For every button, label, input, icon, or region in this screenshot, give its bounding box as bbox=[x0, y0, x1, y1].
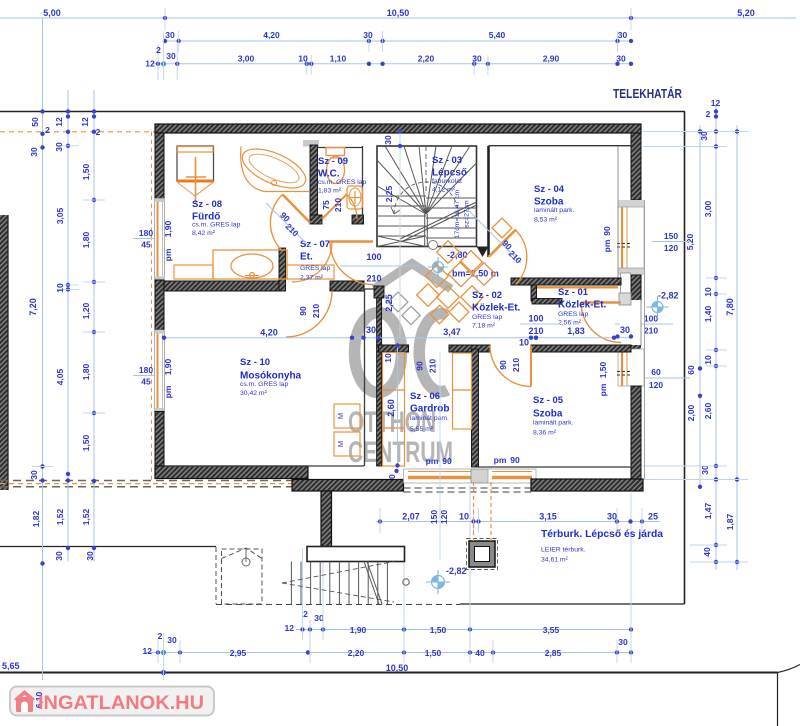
svg-text:45: 45 bbox=[141, 377, 151, 387]
svg-text:Térburk. Lépcső és járda: Térburk. Lépcső és járda bbox=[541, 529, 663, 540]
svg-text:Sz - 06: Sz - 06 bbox=[410, 391, 440, 402]
svg-text:3,00: 3,00 bbox=[238, 54, 255, 64]
svg-text:3,47: 3,47 bbox=[443, 327, 461, 337]
svg-text:2,07: 2,07 bbox=[402, 512, 420, 522]
svg-text:1,90: 1,90 bbox=[163, 220, 173, 237]
svg-text:GRES lap: GRES lap bbox=[472, 314, 502, 321]
svg-text:Sz - 10: Sz - 10 bbox=[240, 357, 270, 368]
svg-text:12: 12 bbox=[145, 59, 155, 69]
svg-text:2,37 m²: 2,37 m² bbox=[300, 275, 324, 282]
svg-text:8,42 m²: 8,42 m² bbox=[192, 230, 216, 237]
svg-text:10,50: 10,50 bbox=[387, 8, 410, 18]
svg-text:30: 30 bbox=[166, 51, 176, 61]
svg-text:1,52: 1,52 bbox=[55, 508, 65, 525]
svg-text:2: 2 bbox=[156, 45, 161, 55]
svg-text:1,50: 1,50 bbox=[598, 361, 608, 378]
svg-text:5,55 m²: 5,55 m² bbox=[410, 426, 434, 433]
svg-text:Sz - 01: Sz - 01 bbox=[558, 287, 589, 298]
svg-text:cs.m. GRES lap: cs.m. GRES lap bbox=[318, 179, 367, 186]
svg-text:10: 10 bbox=[703, 355, 713, 365]
svg-text:150: 150 bbox=[429, 510, 439, 524]
svg-text:1,20: 1,20 bbox=[81, 302, 91, 319]
svg-text:3,55: 3,55 bbox=[543, 625, 560, 635]
svg-text:1,52: 1,52 bbox=[81, 508, 91, 525]
svg-text:10: 10 bbox=[703, 287, 713, 297]
svg-text:210: 210 bbox=[311, 304, 321, 318]
svg-text:10,50: 10,50 bbox=[386, 663, 409, 673]
svg-text:12: 12 bbox=[54, 117, 64, 127]
svg-text:1,47: 1,47 bbox=[703, 502, 713, 519]
svg-text:Sz - 02: Sz - 02 bbox=[472, 290, 502, 301]
svg-text:210: 210 bbox=[366, 274, 381, 284]
svg-text:-2,82: -2,82 bbox=[658, 291, 679, 301]
svg-text:25: 25 bbox=[648, 512, 658, 522]
svg-text:3,15: 3,15 bbox=[539, 512, 557, 522]
svg-text:2,90: 2,90 bbox=[543, 54, 560, 64]
svg-text:2,85: 2,85 bbox=[545, 648, 562, 658]
svg-text:GRES lap: GRES lap bbox=[558, 311, 588, 318]
svg-text:210: 210 bbox=[644, 326, 658, 336]
svg-text:cs.m. GRES lap: cs.m. GRES lap bbox=[240, 381, 289, 388]
svg-text:Sz - 04: Sz - 04 bbox=[534, 184, 565, 195]
svg-text:60: 60 bbox=[686, 365, 696, 375]
svg-text:M: M bbox=[336, 441, 345, 447]
svg-text:pm: pm bbox=[598, 383, 608, 396]
svg-text:Közlek-Et.: Közlek-Et. bbox=[558, 300, 607, 311]
svg-text:laminált park.: laminált park. bbox=[533, 420, 574, 427]
svg-text:Sz - 07: Sz - 07 bbox=[300, 239, 330, 250]
svg-text:Mosókonyha: Mosókonyha bbox=[240, 371, 302, 382]
svg-text:75: 75 bbox=[321, 200, 331, 210]
svg-text:4,12 m²: 4,12 m² bbox=[432, 187, 456, 194]
svg-text:7,18 m²: 7,18 m² bbox=[472, 323, 496, 330]
svg-text:2: 2 bbox=[96, 127, 101, 137]
svg-text:150: 150 bbox=[664, 231, 678, 241]
svg-text:5,40: 5,40 bbox=[489, 30, 506, 40]
svg-text:210: 210 bbox=[428, 359, 438, 373]
svg-text:90: 90 bbox=[442, 456, 452, 466]
svg-text:faburkolat: faburkolat bbox=[432, 178, 462, 185]
svg-text:1,50: 1,50 bbox=[81, 163, 91, 180]
svg-text:30: 30 bbox=[383, 135, 393, 145]
svg-text:30: 30 bbox=[618, 637, 628, 647]
svg-text:1,87: 1,87 bbox=[725, 513, 735, 530]
svg-text:30: 30 bbox=[85, 551, 95, 561]
svg-text:2: 2 bbox=[303, 609, 308, 619]
svg-text:Sz - 03: Sz - 03 bbox=[432, 155, 462, 166]
svg-text:7,20: 7,20 bbox=[28, 298, 38, 316]
svg-text:2: 2 bbox=[45, 125, 50, 135]
svg-text:12: 12 bbox=[285, 623, 295, 633]
svg-text:Sz - 08: Sz - 08 bbox=[192, 199, 222, 210]
svg-text:2,00: 2,00 bbox=[686, 404, 696, 421]
svg-text:30: 30 bbox=[314, 613, 324, 623]
svg-text:90: 90 bbox=[415, 361, 425, 371]
svg-text:Gardrob: Gardrob bbox=[410, 404, 449, 415]
svg-text:GRES lap: GRES lap bbox=[300, 265, 330, 272]
svg-text:cs.m. GRES lap: cs.m. GRES lap bbox=[192, 222, 241, 229]
svg-text:pm: pm bbox=[494, 455, 507, 465]
svg-text:100: 100 bbox=[528, 314, 543, 324]
svg-text:2: 2 bbox=[158, 631, 163, 641]
svg-text:3,05: 3,05 bbox=[55, 207, 65, 224]
svg-text:INGATLANOK.HU: INGATLANOK.HU bbox=[38, 692, 204, 714]
svg-text:1,82: 1,82 bbox=[31, 510, 41, 527]
svg-text:4,20: 4,20 bbox=[260, 328, 278, 338]
svg-text:180: 180 bbox=[139, 365, 153, 375]
svg-text:Sz - 09: Sz - 09 bbox=[318, 156, 348, 167]
svg-text:2,95: 2,95 bbox=[230, 648, 247, 658]
svg-text:3,00: 3,00 bbox=[703, 200, 713, 217]
svg-text:pm: pm bbox=[602, 239, 612, 252]
svg-text:pm: pm bbox=[426, 456, 439, 466]
svg-text:30: 30 bbox=[29, 470, 39, 480]
svg-text:30: 30 bbox=[616, 54, 626, 64]
svg-text:34,61 m²: 34,61 m² bbox=[541, 557, 569, 564]
svg-text:30: 30 bbox=[29, 147, 39, 157]
svg-text:30: 30 bbox=[54, 551, 64, 561]
svg-text:M: M bbox=[336, 413, 345, 419]
svg-text:5,00: 5,00 bbox=[43, 8, 61, 18]
svg-text:210: 210 bbox=[528, 326, 543, 336]
svg-text:12: 12 bbox=[711, 98, 721, 108]
svg-text:30: 30 bbox=[620, 325, 630, 335]
svg-text:30: 30 bbox=[165, 30, 175, 40]
svg-text:30: 30 bbox=[618, 30, 628, 40]
svg-text:5,20: 5,20 bbox=[737, 8, 755, 18]
svg-text:90: 90 bbox=[602, 226, 612, 236]
svg-text:40: 40 bbox=[702, 547, 712, 557]
svg-text:8,53 m²: 8,53 m² bbox=[534, 217, 558, 224]
svg-text:210: 210 bbox=[333, 198, 343, 212]
svg-text:W.C.: W.C. bbox=[318, 169, 340, 180]
svg-text:100: 100 bbox=[366, 252, 381, 262]
svg-text:30: 30 bbox=[699, 131, 709, 141]
svg-text:120: 120 bbox=[439, 510, 449, 524]
svg-text:2,25: 2,25 bbox=[384, 294, 394, 312]
svg-text:45: 45 bbox=[141, 240, 151, 250]
svg-text:30: 30 bbox=[366, 325, 376, 335]
svg-text:1,50: 1,50 bbox=[425, 648, 442, 658]
svg-text:100: 100 bbox=[644, 314, 658, 324]
svg-text:Közlek-Et.: Közlek-Et. bbox=[472, 303, 521, 314]
svg-text:50: 50 bbox=[30, 117, 40, 127]
svg-text:1,50: 1,50 bbox=[430, 625, 447, 635]
svg-text:TELEKHATÁR: TELEKHATÁR bbox=[613, 86, 682, 101]
svg-text:Sz - 05: Sz - 05 bbox=[533, 395, 564, 406]
svg-text:2,56 m²: 2,56 m² bbox=[558, 320, 582, 327]
svg-text:30: 30 bbox=[700, 465, 710, 475]
svg-text:120: 120 bbox=[664, 243, 678, 253]
svg-text:1,50: 1,50 bbox=[81, 434, 91, 451]
svg-text:2: 2 bbox=[706, 109, 711, 119]
svg-text:-2,82: -2,82 bbox=[446, 566, 467, 576]
svg-text:2,20: 2,20 bbox=[348, 648, 365, 658]
svg-text:30: 30 bbox=[167, 635, 177, 645]
svg-text:10: 10 bbox=[459, 512, 469, 522]
svg-text:LEIER térburk.: LEIER térburk. bbox=[541, 547, 586, 554]
svg-text:4,20: 4,20 bbox=[263, 30, 280, 40]
svg-text:Et.: Et. bbox=[300, 252, 313, 263]
svg-text:7,80: 7,80 bbox=[725, 298, 735, 316]
svg-text:90: 90 bbox=[298, 306, 308, 316]
svg-text:-2,80: -2,80 bbox=[447, 250, 468, 260]
svg-text:1,83 m²: 1,83 m² bbox=[318, 188, 342, 195]
svg-text:180: 180 bbox=[139, 228, 153, 238]
svg-text:1,83: 1,83 bbox=[567, 326, 585, 336]
svg-text:1,80: 1,80 bbox=[81, 231, 91, 248]
svg-text:10: 10 bbox=[55, 283, 65, 293]
svg-text:40: 40 bbox=[475, 648, 485, 658]
svg-text:1,90: 1,90 bbox=[350, 625, 367, 635]
svg-text:30: 30 bbox=[472, 54, 482, 64]
svg-text:90: 90 bbox=[498, 360, 508, 370]
svg-text:2,20: 2,20 bbox=[418, 54, 435, 64]
svg-text:pm: pm bbox=[163, 385, 173, 398]
svg-text:30,42 m²: 30,42 m² bbox=[240, 390, 268, 397]
svg-text:8,36 m²: 8,36 m² bbox=[533, 430, 557, 437]
svg-text:4,05: 4,05 bbox=[55, 368, 65, 385]
svg-text:5,65: 5,65 bbox=[2, 661, 20, 671]
svg-text:1,10: 1,10 bbox=[330, 54, 347, 64]
svg-text:1,40: 1,40 bbox=[703, 305, 713, 322]
svg-text:1,80: 1,80 bbox=[81, 363, 91, 380]
svg-text:1,90: 1,90 bbox=[163, 358, 173, 375]
svg-text:laminált park.: laminált park. bbox=[534, 207, 575, 214]
svg-text:60: 60 bbox=[651, 367, 661, 377]
svg-text:12: 12 bbox=[143, 646, 153, 656]
svg-text:30: 30 bbox=[54, 142, 64, 152]
svg-text:pm: pm bbox=[163, 248, 173, 261]
svg-text:90: 90 bbox=[510, 455, 520, 465]
svg-text:sz=27cm: sz=27cm bbox=[464, 200, 471, 228]
svg-text:10: 10 bbox=[383, 353, 393, 363]
svg-text:30: 30 bbox=[363, 30, 373, 40]
svg-text:laminát pam.: laminát pam. bbox=[410, 415, 449, 422]
svg-text:2,60: 2,60 bbox=[386, 399, 396, 417]
svg-text:17cm=16,47 cm: 17cm=16,47 cm bbox=[454, 189, 461, 238]
svg-text:10: 10 bbox=[298, 54, 308, 64]
svg-text:Lépcső: Lépcső bbox=[432, 168, 467, 179]
svg-text:120: 120 bbox=[649, 380, 663, 390]
svg-text:10: 10 bbox=[519, 338, 529, 348]
svg-text:2,25: 2,25 bbox=[384, 185, 394, 202]
svg-text:30: 30 bbox=[607, 512, 617, 522]
svg-text:Szoba: Szoba bbox=[534, 197, 564, 208]
svg-text:12: 12 bbox=[80, 117, 90, 127]
svg-text:2,60: 2,60 bbox=[703, 402, 713, 419]
svg-text:Szoba: Szoba bbox=[533, 409, 563, 420]
svg-text:210: 210 bbox=[511, 358, 521, 372]
